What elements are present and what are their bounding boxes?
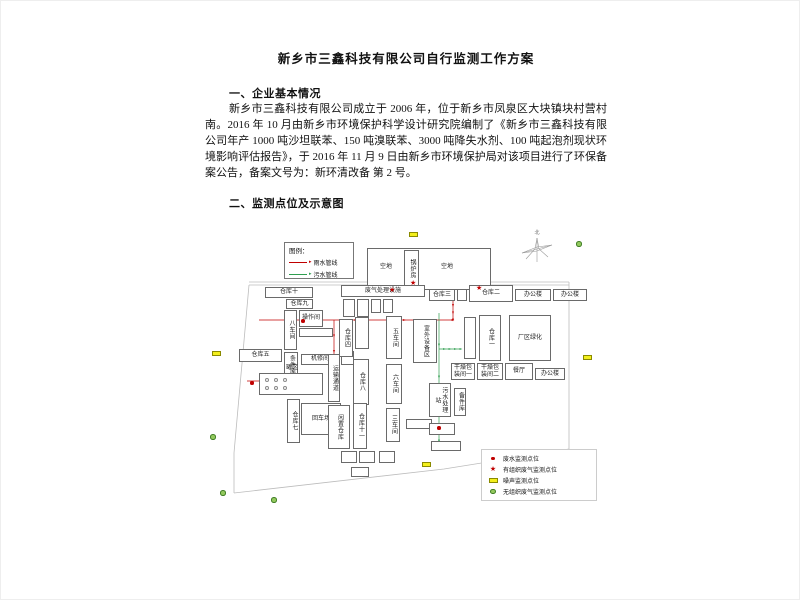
monitoring-legend-label: 废水监测点位 — [503, 454, 539, 463]
map-building: 八车间 — [284, 310, 297, 350]
map-building: 仓库一 — [479, 315, 501, 361]
map-box — [464, 317, 476, 359]
pipe-line-swatch — [289, 274, 307, 275]
map-box — [357, 299, 369, 317]
map-building: 污水处理站 — [429, 383, 451, 417]
pipe-legend-item: ▸雨水管线 — [289, 258, 349, 267]
noise-point-marker — [422, 462, 431, 467]
section-2-heading: 二、监测点位及示意图 — [229, 195, 344, 211]
site-plan-map: 图例： ▸雨水管线▸污水管线 北 废水监测点位★有组织废气监测点位噪声监测点位无… — [201, 221, 599, 513]
pipe-legend-items: ▸雨水管线▸污水管线 — [289, 258, 349, 279]
noise-point-marker — [409, 232, 418, 237]
tank-icon — [274, 378, 278, 382]
arrow-icon: ▸ — [309, 272, 312, 277]
map-building: 三车间 — [386, 408, 400, 442]
map-box — [341, 451, 357, 463]
organized-gas-point-marker: ★ — [410, 280, 416, 287]
monitoring-legend-item: 噪声监测点位 — [487, 475, 591, 486]
map-box — [429, 423, 455, 435]
noise-point-marker — [212, 351, 221, 356]
pipe-line-swatch — [289, 262, 307, 263]
map-box — [457, 289, 467, 301]
monitoring-legend-item: ★有组织废气监测点位 — [487, 464, 591, 475]
monitoring-legend-item: 无组织废气监测点位 — [487, 486, 591, 497]
monitoring-legend-label: 无组织废气监测点位 — [503, 487, 557, 496]
map-box — [355, 317, 369, 349]
pipe-legend-label: 雨水管线 — [314, 258, 338, 267]
map-building: 厂区绿化 — [509, 315, 551, 361]
fugitive-gas-point-marker — [576, 241, 582, 247]
map-box — [431, 441, 461, 451]
map-box — [359, 451, 375, 463]
factory-boundary-line — [234, 285, 249, 493]
map-box — [259, 373, 323, 395]
map-box — [351, 467, 369, 477]
document-page: 新乡市三鑫科技有限公司自行监测工作方案 一、企业基本情况 新乡市三鑫科技有限公司… — [0, 0, 800, 600]
section-1-heading: 一、企业基本情况 — [229, 85, 321, 101]
map-building: 办公楼 — [515, 289, 551, 301]
monitoring-legend-item: 废水监测点位 — [487, 453, 591, 464]
map-building: 仓库五 — [239, 349, 282, 362]
map-box — [383, 299, 393, 313]
monitoring-legend-label: 有组织废气监测点位 — [503, 465, 557, 474]
map-building: 干燥包装间二 — [477, 363, 503, 380]
map-building: 餐厅 — [505, 363, 533, 380]
map-building: 仓库九 — [286, 299, 313, 309]
map-building: 运输通道 — [328, 354, 340, 402]
section-1-paragraph: 新乡市三鑫科技有限公司成立于 2006 年，位于新乡市凤泉区大块镇块村营村南。2… — [205, 101, 607, 181]
wastewater-point-marker — [250, 381, 254, 385]
tank-icon — [283, 386, 287, 390]
map-building: 仓库八 — [353, 359, 369, 405]
map-building: 仓库四 — [339, 319, 353, 357]
map-building: 干燥包装间一 — [451, 363, 475, 380]
map-box — [379, 451, 395, 463]
map-building: 仓库十 — [265, 287, 313, 298]
map-building: 闲置仓库 — [328, 405, 350, 449]
tank-icon — [265, 378, 269, 382]
organized-gas-point-marker: ★ — [389, 287, 395, 294]
pipe-legend: 图例： ▸雨水管线▸污水管线 — [284, 242, 354, 279]
compass-rose-icon: 北 — [519, 231, 555, 267]
pipe-legend-label: 污水管线 — [314, 270, 338, 279]
wastewater-point-marker — [301, 319, 305, 323]
map-building: 空地 — [425, 259, 469, 275]
tank-icon — [265, 386, 269, 390]
fugitive-gas-point-marker — [210, 434, 216, 440]
tank-icon — [283, 378, 287, 382]
organized-gas-point-marker: ★ — [476, 285, 482, 292]
map-building: 仓库十一 — [353, 403, 367, 449]
map-building: 罐区 — [281, 364, 303, 372]
fugitive-gas-point-marker — [220, 490, 226, 496]
fugitive-gas-point-marker — [490, 489, 496, 495]
map-building: 六车间 — [386, 364, 402, 404]
monitoring-legend-label: 噪声监测点位 — [503, 476, 539, 485]
map-building: 五车间 — [386, 316, 402, 359]
wind-rose-graphic — [519, 236, 555, 264]
wastewater-point-marker — [491, 457, 495, 461]
noise-point-marker — [489, 478, 498, 483]
map-building: 办公楼 — [553, 289, 587, 301]
pipe-legend-item: ▸污水管线 — [289, 270, 349, 279]
organized-gas-point-marker: ★ — [490, 466, 496, 473]
map-box — [343, 299, 355, 317]
map-building: 空地 — [369, 259, 403, 275]
map-box — [299, 328, 333, 337]
map-building: 仓库七 — [287, 399, 300, 443]
map-building: 办公楼 — [535, 368, 565, 380]
pipe-legend-title: 图例： — [289, 245, 349, 255]
fugitive-gas-point-marker — [271, 497, 277, 503]
document-title: 新乡市三鑫科技有限公司自行监测工作方案 — [205, 48, 607, 67]
map-building: 备件库 — [454, 388, 466, 416]
fugitive-gas-point-marker-swatch — [487, 489, 499, 495]
noise-point-marker-swatch — [487, 478, 499, 483]
map-building: 仓库三 — [429, 289, 455, 301]
wastewater-point-marker — [437, 426, 441, 430]
tank-icon — [274, 386, 278, 390]
map-building: 室外设备区 — [413, 319, 437, 363]
noise-point-marker — [583, 355, 592, 360]
monitoring-legend: 废水监测点位★有组织废气监测点位噪声监测点位无组织废气监测点位 — [481, 449, 597, 501]
organized-gas-point-marker-swatch: ★ — [487, 466, 499, 473]
arrow-icon: ▸ — [309, 260, 312, 265]
wastewater-point-marker-swatch — [487, 457, 499, 461]
map-box — [371, 299, 381, 313]
